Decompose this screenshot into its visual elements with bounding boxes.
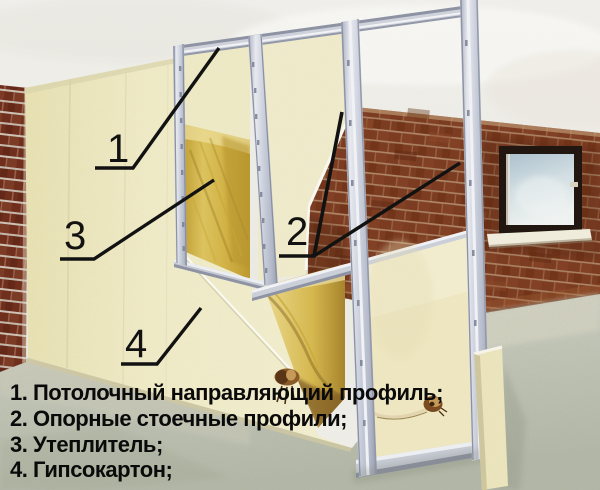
svg-text:4. Гипсокартон;: 4. Гипсокартон; xyxy=(10,457,172,482)
svg-text:1. Потолочный направляющий про: 1. Потолочный направляющий профиль; xyxy=(10,380,443,405)
svg-text:2. Опорные стоечные профили;: 2. Опорные стоечные профили; xyxy=(10,406,347,431)
svg-text:3. Утеплитель;: 3. Утеплитель; xyxy=(10,432,163,457)
